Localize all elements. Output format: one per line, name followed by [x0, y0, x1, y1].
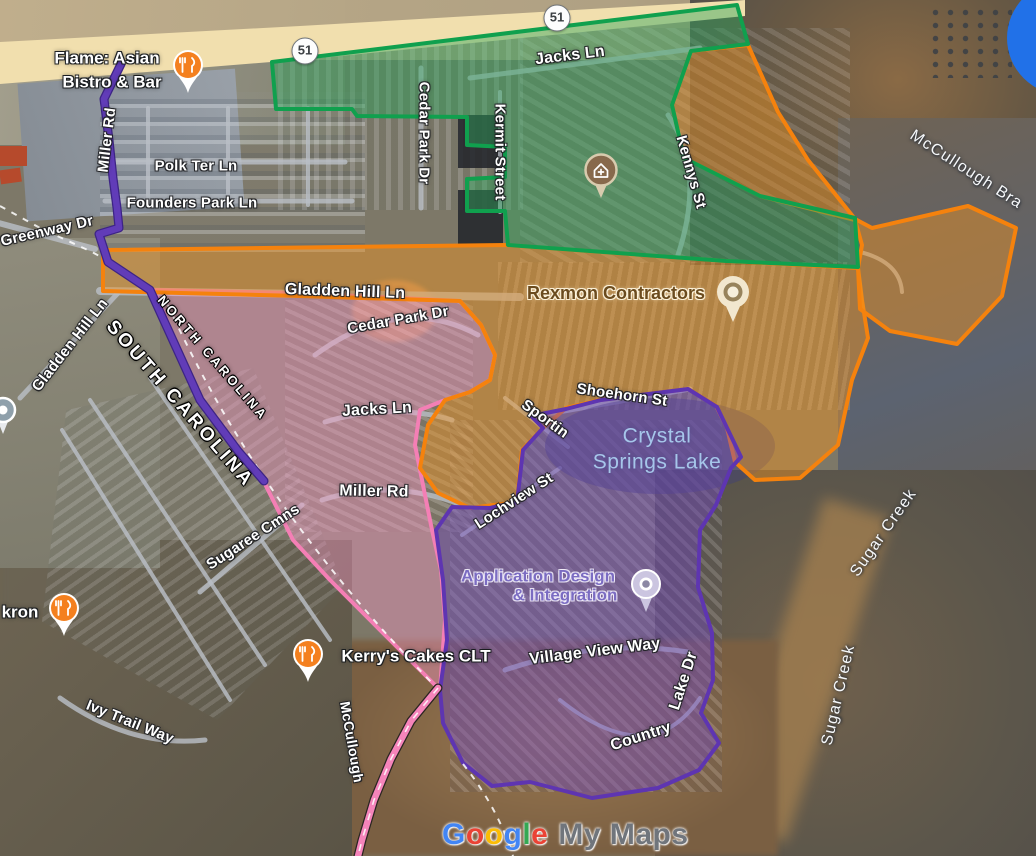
restaurant-icon	[44, 588, 84, 640]
pink-route-mccullough[interactable]	[358, 688, 438, 856]
cedar-park-dr-north-label: Cedar Park Dr	[417, 82, 432, 185]
home-plus-icon	[579, 148, 623, 204]
generic-gray-pin[interactable]	[0, 392, 21, 445]
miller-rd-label: Miller Rd	[339, 483, 409, 500]
restaurant-icon	[168, 45, 208, 97]
application-design-pin[interactable]	[626, 564, 666, 621]
google-logo-letter: o	[485, 818, 504, 851]
kerrys-cakes-clt-label[interactable]: Kerry's Cakes CLT	[341, 648, 490, 665]
restaurant-icon	[288, 634, 328, 686]
kerrys-restaurant-pin[interactable]	[288, 634, 328, 691]
founders-park-ln-label: Founders Park Ln	[127, 196, 258, 211]
google-logo-letter: g	[504, 818, 523, 851]
crystal-springs-lake-1-label: Crystal	[623, 426, 692, 447]
flame-asian-2-label[interactable]: Bistro & Bar	[62, 74, 161, 91]
highway-shield-51: 51	[544, 5, 571, 32]
kron-label[interactable]: kron	[2, 604, 39, 621]
google-logo-letter: l	[522, 818, 531, 851]
kermit-street-label: Kermit Street	[493, 104, 508, 201]
my-maps-label: My Maps	[558, 818, 688, 851]
place-dot-icon	[711, 270, 755, 328]
flame-asian-1-label[interactable]: Flame: Asian	[54, 50, 159, 67]
pink-route-mccullough-casing	[358, 688, 438, 856]
blue-circle-marker	[1007, 0, 1036, 95]
polk-ter-ln-label: Polk Ter Ln	[155, 159, 238, 174]
google-logo-letter: G	[442, 818, 466, 851]
road-line	[62, 430, 230, 700]
google-logo-letter: e	[531, 818, 548, 851]
home-plus-pin[interactable]	[579, 148, 623, 209]
application-design-1-label[interactable]: Application Design	[461, 568, 615, 585]
generic-place-icon	[0, 392, 21, 440]
crystal-springs-lake-2-label: Springs Lake	[593, 452, 722, 473]
map-canvas[interactable]: Polk Ter LnFounders Park LnGreenway DrGl…	[0, 0, 1036, 856]
rexmon-pin[interactable]	[711, 270, 755, 333]
place-dot-icon	[626, 564, 666, 616]
google-my-maps-watermark: GoogleMy Maps	[442, 818, 689, 852]
pink-route-mccullough-center-dash	[358, 688, 438, 856]
kron-restaurant-pin[interactable]	[44, 588, 84, 645]
google-logo-letter: o	[466, 818, 485, 851]
application-design-2-label[interactable]: & Integration	[513, 587, 618, 604]
rexmon-contractors-label[interactable]: Rexmon Contractors	[527, 284, 705, 302]
flame-restaurant-pin[interactable]	[168, 45, 208, 102]
highway-shield-51: 51	[292, 38, 319, 65]
